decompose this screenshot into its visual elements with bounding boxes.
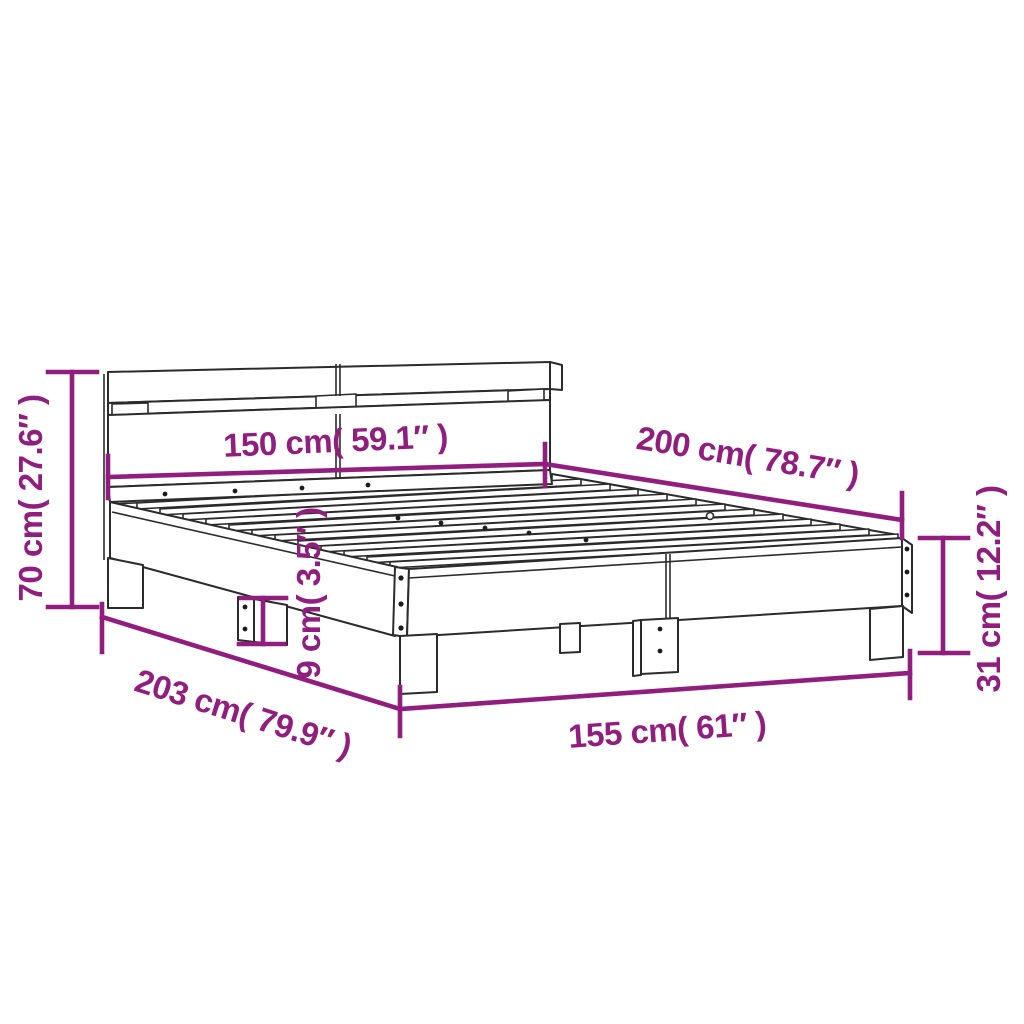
screw-dot [398,575,403,580]
screw-dot [300,486,305,491]
top-rail-end-cap [550,362,562,390]
dimension-label-frame-width: 155 cm( 61″ ) [567,704,767,755]
corner-leg [400,634,437,694]
foot-mid-leg-side [633,620,641,676]
center-support-leg [560,623,580,653]
screw-dot [243,627,248,632]
screw-dot [584,538,589,543]
foot-right-leg [870,606,903,660]
bed-frame-dimension-diagram: 150 cm( 59.1″ ) 200 cm( 78.7″ ) 70 cm( 2… [0,0,1024,1024]
screw-dot [905,547,910,552]
screw-dot [366,483,371,488]
screw-dot [439,521,444,526]
mid-leg-side [238,597,254,642]
screw-dot [233,489,238,494]
screw-dot [658,649,663,654]
headboard-leg [108,558,143,608]
dimension-line [400,673,910,709]
screw-dot [398,625,403,630]
screw-dot [163,492,168,497]
dim-rail-height: 31 cm( 12.2″ ) [920,486,1007,693]
screw-dot [243,605,248,610]
pilot-hole [707,513,714,520]
dimension-label-headboard-height: 70 cm( 27.6″ ) [12,395,49,602]
screw-dot [398,601,403,606]
screw-dot [483,526,488,531]
dim-headboard-height: 70 cm( 27.6″ ) [12,372,97,607]
dimension-label-rail-height: 31 cm( 12.2″ ) [970,486,1007,693]
mid-leg-front [254,599,287,645]
screw-dot [905,593,910,598]
screw-dot [527,531,532,536]
screw-dot [658,627,663,632]
bed-frame-drawing [104,362,912,694]
screw-dot [905,570,910,575]
foot-mid-leg-front [641,618,678,674]
screw-dot [396,516,401,521]
dimension-label-leg-height: 9 cm( 3.5″ ) [290,507,327,678]
diagram-canvas: 150 cm( 59.1″ ) 200 cm( 78.7″ ) 70 cm( 2… [0,0,1024,1024]
